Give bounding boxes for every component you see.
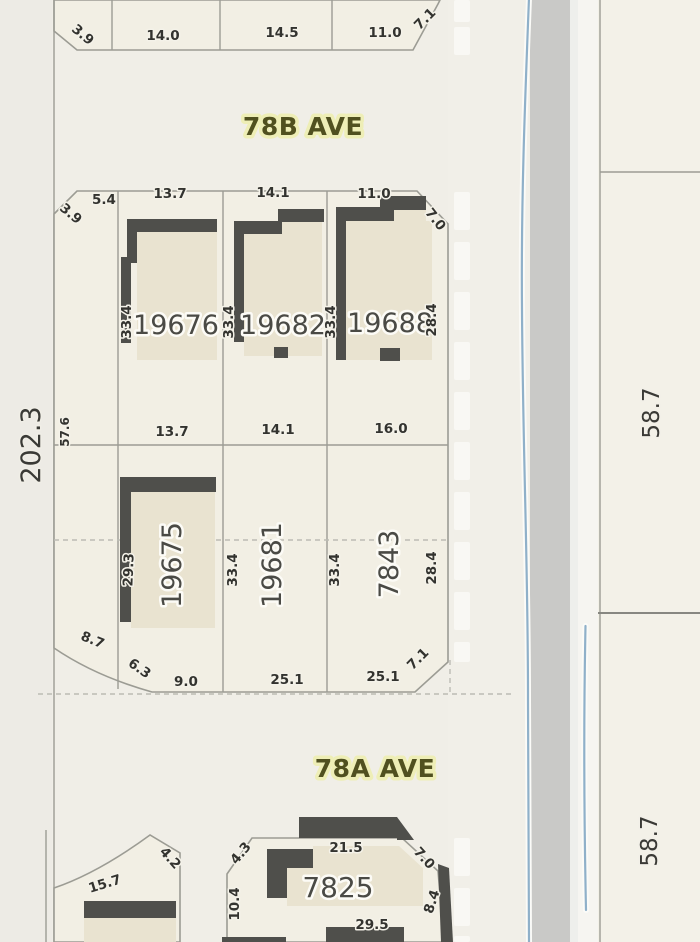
tick <box>454 392 470 430</box>
street-label-78a-ave: 78A AVE <box>315 754 435 783</box>
dim-7843-frontage: 25.1 <box>366 669 399 685</box>
dim-19688-depth: 33.4 <box>323 305 339 338</box>
lot-label-19688: 19688 <box>347 308 433 339</box>
tick <box>454 342 470 380</box>
lot-label-7825: 7825 <box>302 871 373 904</box>
dim-west-block-length: 202.3 <box>16 406 47 483</box>
tick <box>454 292 470 330</box>
dim-north-frontage-3: 11.0 <box>368 25 401 41</box>
dim-north-frontage-2: 14.5 <box>265 25 298 41</box>
building-body <box>84 918 176 942</box>
dim-upper-right-depth: 28.4 <box>424 303 440 336</box>
building-wall <box>127 219 217 232</box>
map-viewport[interactable]: 78B AVE 78A AVE 202.3 57.6 58.7 58.7 3.9… <box>0 0 700 942</box>
tick <box>454 192 470 230</box>
dim-7825-side-w: 10.4 <box>227 887 243 920</box>
street-label-78b-ave: 78B AVE <box>243 112 363 141</box>
dim-7843-depth: 33.4 <box>327 553 343 586</box>
dim-19688-rear: 16.0 <box>374 421 407 437</box>
dim-19675-depth: 29.3 <box>120 553 137 587</box>
dim-19688-frontage: 11.0 <box>357 186 390 202</box>
tick <box>454 27 470 55</box>
building-body <box>394 210 426 223</box>
building-wall <box>278 209 324 222</box>
dim-19682-rear: 14.1 <box>261 422 294 438</box>
lot-label-19675: 19675 <box>157 522 188 608</box>
dim-19682-frontage: 14.1 <box>256 185 289 201</box>
lot-label-19681: 19681 <box>257 522 288 608</box>
dim-north-frontage-1: 14.0 <box>146 28 179 44</box>
dim-19675-frontage: 9.0 <box>174 674 198 690</box>
dim-lower-right-depth: 28.4 <box>424 551 440 584</box>
building-wall <box>120 477 216 492</box>
east-parcel-ground <box>598 0 700 942</box>
building-wall <box>299 817 397 838</box>
building-shed <box>274 347 288 358</box>
tick <box>454 0 470 22</box>
building-body <box>346 221 432 360</box>
dim-7825-rear: 29.5 <box>355 917 388 933</box>
dim-west-strip-depth: 57.6 <box>58 417 72 447</box>
east-verge <box>578 0 600 942</box>
cadastral-map[interactable]: 78B AVE 78A AVE 202.3 57.6 58.7 58.7 3.9… <box>0 0 700 942</box>
building-shed <box>380 348 400 361</box>
dim-east-parcel-north: 58.7 <box>639 387 665 438</box>
tick <box>454 592 470 630</box>
lot-label-19682: 19682 <box>240 310 326 341</box>
tick <box>454 642 470 662</box>
building-wall <box>222 937 286 942</box>
dim-7825-front: 21.5 <box>329 840 362 856</box>
building-wall <box>120 477 131 622</box>
dim-19682-depth: 33.4 <box>221 305 237 338</box>
dim-19676-frontage: 13.7 <box>153 186 186 202</box>
dim-east-parcel-south: 58.7 <box>637 815 663 866</box>
tick <box>454 936 470 942</box>
building-partial-southwest <box>84 901 176 942</box>
lot-label-7843: 7843 <box>374 530 405 599</box>
dim-upper-strip-frontage: 5.4 <box>92 192 116 208</box>
tick <box>454 888 470 926</box>
dim-19676-rear: 13.7 <box>155 424 188 440</box>
tick <box>454 838 470 876</box>
building-wall <box>267 849 313 868</box>
tick <box>454 242 470 280</box>
lot-label-19676: 19676 <box>133 310 219 341</box>
dim-19681-depth: 33.4 <box>225 553 241 586</box>
dim-19681-frontage: 25.1 <box>270 672 303 688</box>
tick <box>454 442 470 480</box>
building-wall <box>127 219 137 263</box>
road-pavement <box>530 0 570 942</box>
tick <box>454 492 470 530</box>
tick <box>454 542 470 580</box>
building-body <box>282 222 322 236</box>
building-wall <box>84 901 176 918</box>
